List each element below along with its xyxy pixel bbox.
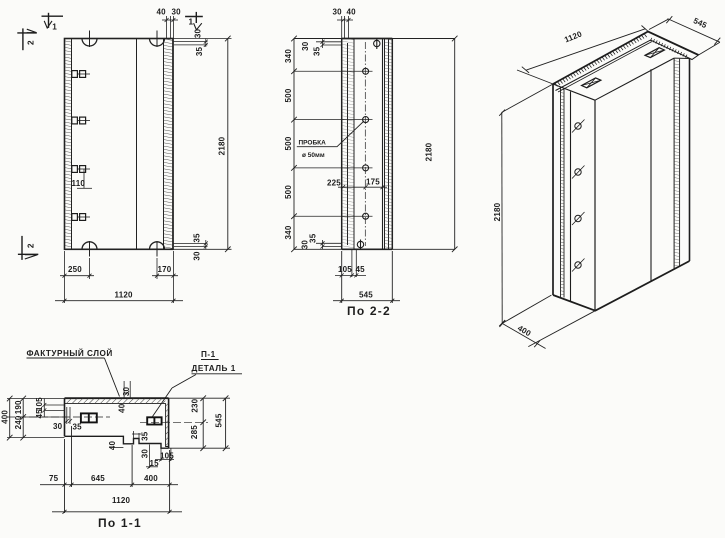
- svg-text:30: 30: [333, 8, 343, 17]
- svg-text:175: 175: [366, 178, 380, 187]
- svg-text:2180: 2180: [218, 136, 227, 155]
- svg-text:40: 40: [157, 8, 167, 17]
- svg-text:По 2-2: По 2-2: [347, 304, 391, 318]
- svg-text:30: 30: [194, 29, 203, 39]
- svg-text:1: 1: [189, 18, 194, 27]
- svg-text:30: 30: [301, 41, 310, 51]
- svg-text:500: 500: [284, 185, 293, 199]
- svg-text:30: 30: [122, 387, 131, 397]
- svg-text:340: 340: [284, 225, 293, 239]
- svg-text:105: 105: [160, 452, 174, 461]
- svg-text:35: 35: [193, 233, 202, 243]
- svg-text:30: 30: [53, 422, 63, 431]
- svg-text:30: 30: [300, 240, 309, 250]
- svg-text:75: 75: [49, 474, 59, 483]
- svg-text:400: 400: [144, 474, 158, 483]
- svg-text:30: 30: [172, 8, 182, 17]
- svg-text:105: 105: [35, 397, 44, 411]
- svg-text:250: 250: [68, 265, 82, 274]
- svg-text:500: 500: [284, 136, 293, 150]
- svg-text:400: 400: [0, 410, 9, 424]
- svg-text:35: 35: [195, 47, 204, 57]
- svg-text:40: 40: [108, 441, 117, 451]
- svg-text:170: 170: [158, 265, 172, 274]
- svg-text:230: 230: [191, 398, 200, 412]
- svg-text:35: 35: [141, 431, 150, 441]
- svg-text:30: 30: [193, 251, 202, 261]
- svg-text:По 1-1: По 1-1: [98, 516, 142, 530]
- svg-text:40: 40: [347, 8, 357, 17]
- svg-text:35: 35: [309, 233, 318, 243]
- svg-text:1120: 1120: [112, 496, 131, 505]
- svg-text:2: 2: [26, 243, 35, 248]
- svg-text:45: 45: [35, 409, 44, 419]
- svg-text:15: 15: [150, 459, 160, 468]
- svg-text:40: 40: [118, 403, 127, 413]
- svg-text:35: 35: [312, 46, 321, 56]
- svg-text:П-1: П-1: [201, 350, 216, 359]
- svg-text:545: 545: [214, 413, 223, 427]
- svg-text:190: 190: [14, 400, 23, 414]
- svg-text:545: 545: [359, 291, 373, 300]
- svg-text:285: 285: [190, 425, 199, 439]
- svg-text:30: 30: [141, 449, 150, 459]
- svg-text:340: 340: [284, 49, 293, 63]
- svg-text:ПРОБКА: ПРОБКА: [299, 140, 327, 147]
- svg-text:ДЕТАЛЬ 1: ДЕТАЛЬ 1: [192, 364, 236, 373]
- svg-text:ø 50мм: ø 50мм: [302, 152, 325, 159]
- svg-text:2: 2: [26, 40, 35, 45]
- svg-text:1: 1: [52, 23, 57, 32]
- svg-text:45: 45: [356, 265, 366, 274]
- svg-text:110: 110: [72, 179, 86, 188]
- svg-text:ФАКТУРНЫЙ СЛОЙ: ФАКТУРНЫЙ СЛОЙ: [27, 347, 113, 358]
- svg-text:2180: 2180: [493, 202, 502, 221]
- svg-text:105: 105: [338, 265, 352, 274]
- svg-text:645: 645: [91, 474, 105, 483]
- svg-text:1120: 1120: [115, 291, 134, 300]
- svg-text:2180: 2180: [425, 142, 434, 161]
- svg-text:240: 240: [14, 415, 23, 429]
- svg-text:500: 500: [284, 88, 293, 102]
- svg-text:35: 35: [73, 423, 83, 432]
- svg-text:225: 225: [327, 179, 341, 188]
